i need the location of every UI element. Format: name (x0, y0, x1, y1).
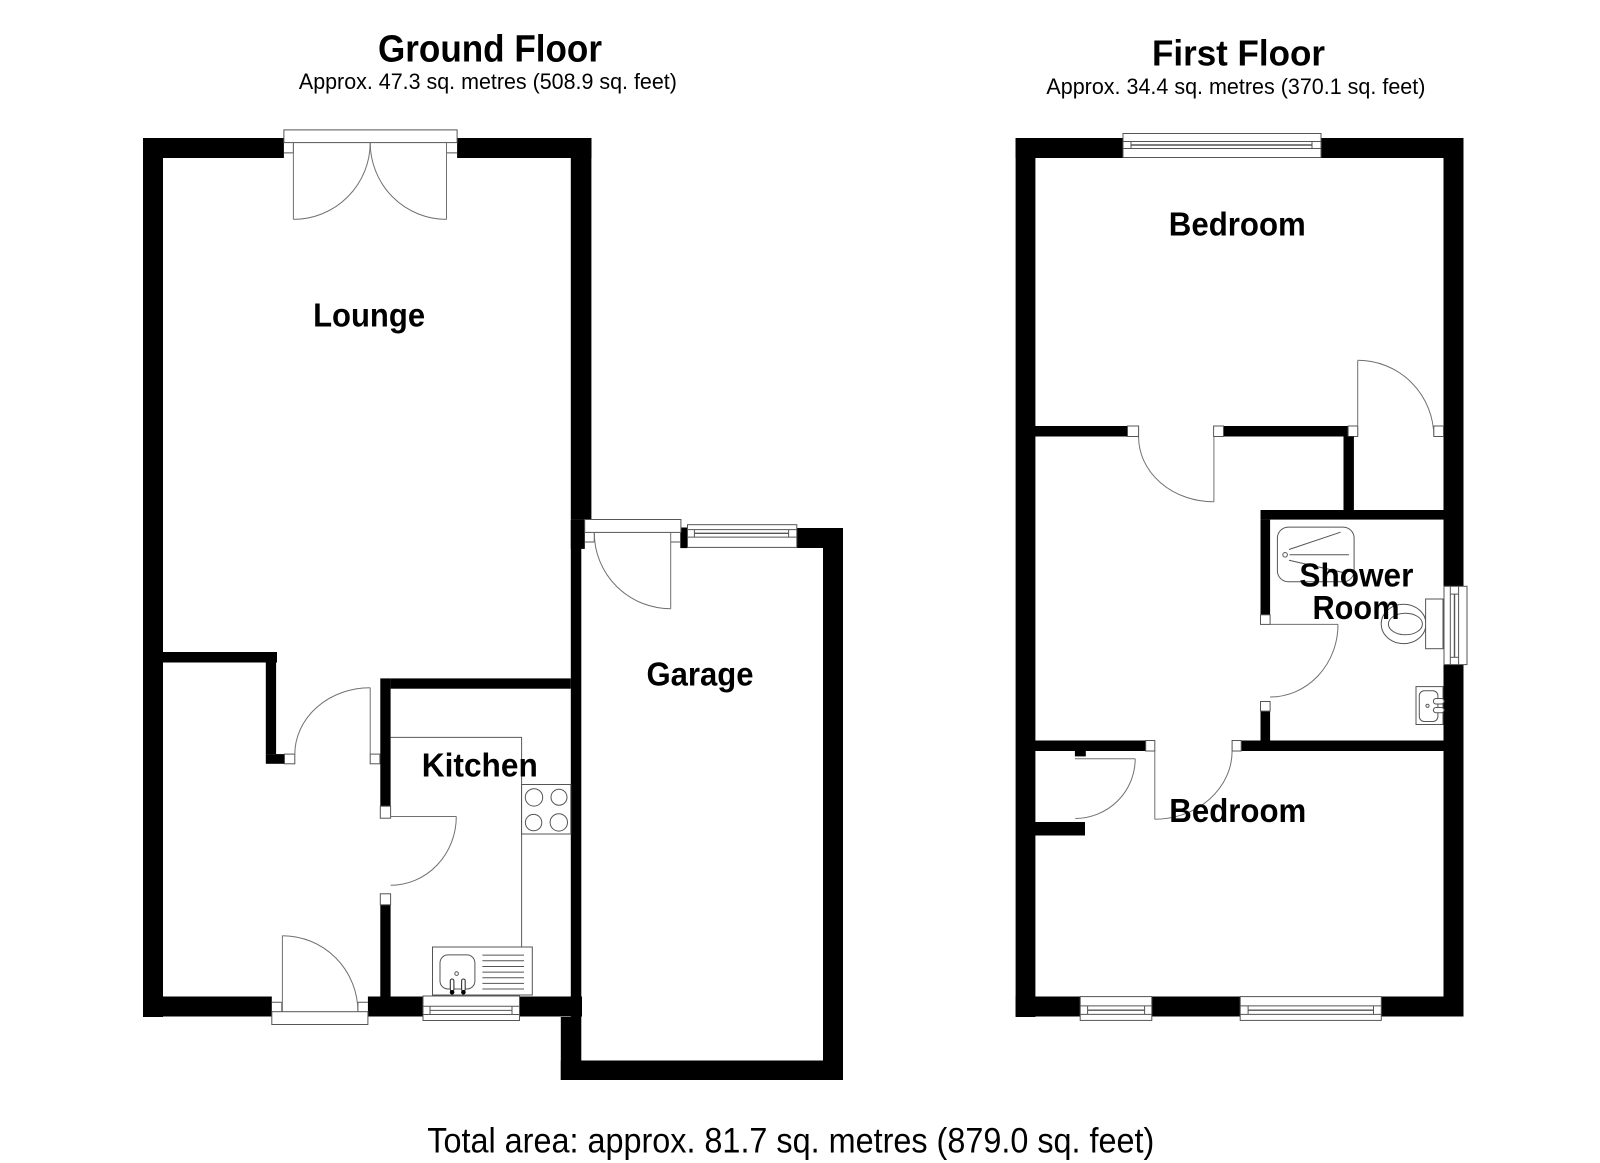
svg-text:Bedroom: Bedroom (1169, 792, 1306, 829)
svg-text:First Floor: First Floor (1152, 33, 1325, 74)
svg-text:Room: Room (1313, 589, 1400, 626)
svg-text:Shower: Shower (1299, 556, 1413, 593)
svg-text:Bedroom: Bedroom (1169, 206, 1306, 243)
svg-text:Total area: approx. 81.7 sq. m: Total area: approx. 81.7 sq. metres (879… (427, 1121, 1154, 1160)
svg-text:Approx. 34.4 sq. metres (370.1: Approx. 34.4 sq. metres (370.1 sq. feet) (1046, 74, 1425, 99)
svg-text:Approx. 47.3 sq. metres (508.9: Approx. 47.3 sq. metres (508.9 sq. feet) (299, 69, 677, 94)
svg-text:Kitchen: Kitchen (422, 746, 538, 783)
svg-text:Lounge: Lounge (313, 296, 425, 333)
svg-text:Ground Floor: Ground Floor (378, 29, 602, 71)
svg-text:Garage: Garage (647, 655, 754, 692)
